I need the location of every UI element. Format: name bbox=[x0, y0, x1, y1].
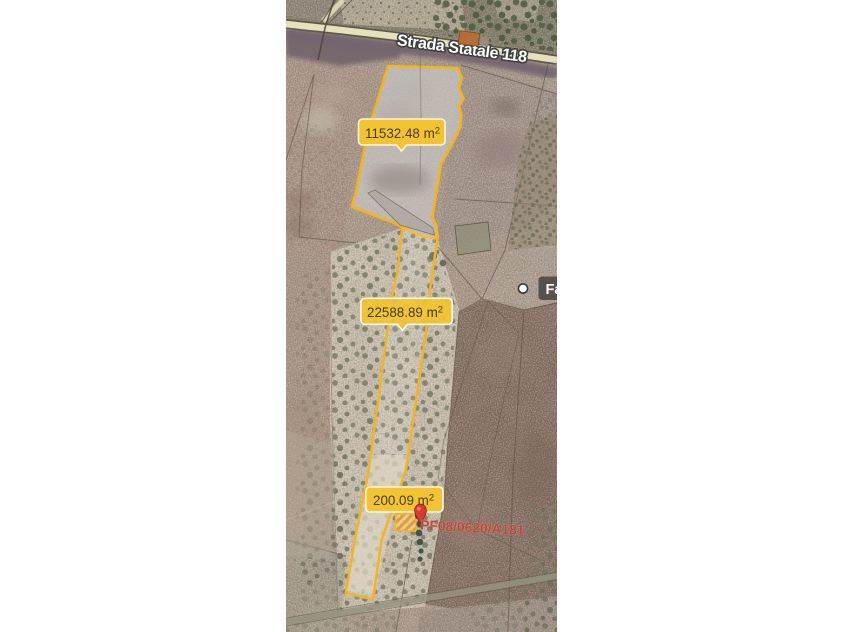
svg-text:Fa: Fa bbox=[546, 282, 558, 298]
svg-text:22588.89 m2: 22588.89 m2 bbox=[367, 305, 443, 321]
svg-text:11532.48 m2: 11532.48 m2 bbox=[365, 125, 440, 141]
svg-text:200.09 m2: 200.09 m2 bbox=[373, 492, 434, 508]
